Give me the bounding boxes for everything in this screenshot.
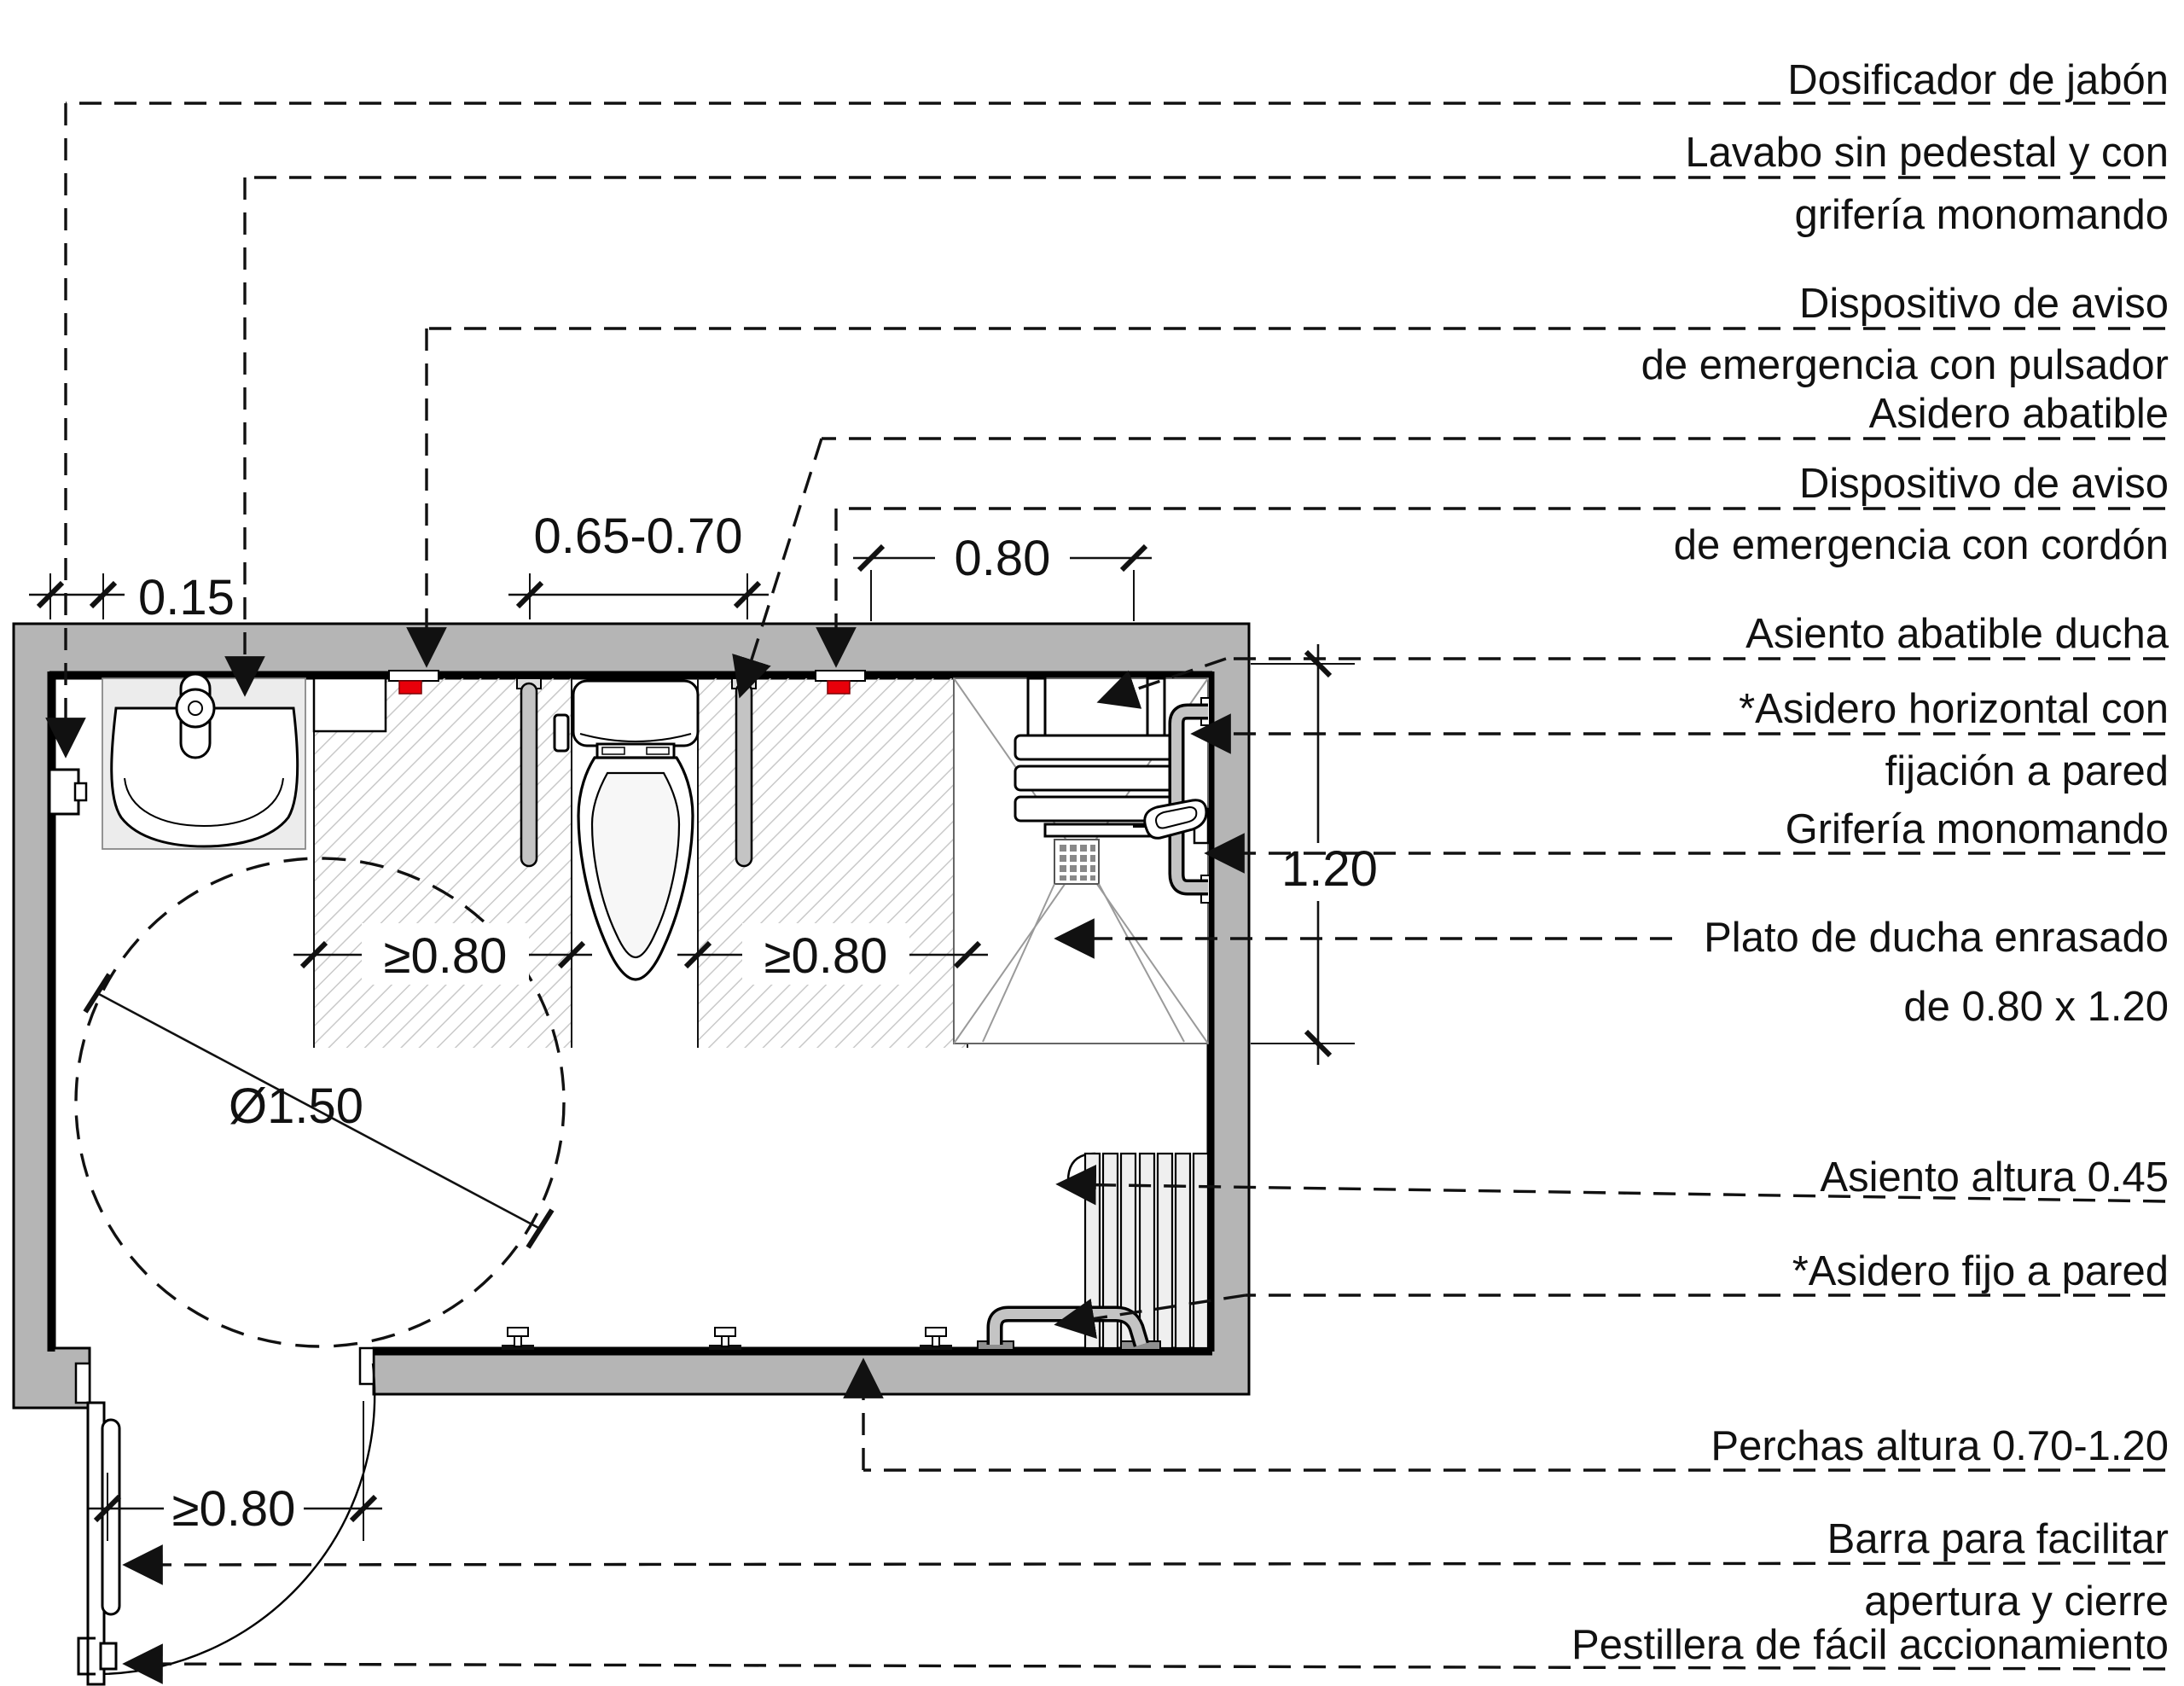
label-asidero-horizontal-2: fijación a pared	[1885, 748, 2169, 794]
label-plato-1: Plato de ducha enrasado	[1704, 915, 2169, 961]
dim-shower-width: 0.80	[955, 531, 1051, 586]
label-barra-2: apertura y cierre	[1864, 1578, 2169, 1625]
coat-hook-3	[920, 1328, 952, 1350]
washbasin	[102, 674, 305, 849]
label-asidero-fijo: *Asidero fijo a pared	[1792, 1248, 2169, 1294]
dim-soap-offset: 0.15	[138, 570, 235, 625]
label-griferia: Grifería monomando	[1786, 806, 2169, 852]
dim-shower-depth: 1.20	[1281, 841, 1378, 897]
cistern-shelf	[314, 678, 386, 731]
label-cordon-2: de emergencia con cordón	[1674, 522, 2169, 568]
dim-door-width: ≥0.80	[172, 1481, 296, 1537]
label-asidero-horizontal-1: *Asidero horizontal con	[1739, 686, 2169, 732]
dim-bar-spacing: 0.65-0.70	[533, 509, 742, 564]
toilet	[555, 681, 698, 980]
dim-bar-spacing-group: 0.65-0.70	[508, 509, 769, 619]
label-soap: Dosificador de jabón	[1787, 57, 2169, 103]
label-pestillera: Pestillera de fácil accionamiento	[1571, 1622, 2169, 1668]
door-jamb-left	[76, 1363, 90, 1403]
coat-hooks	[502, 1328, 952, 1350]
dim-transfer-left: ≥0.80	[384, 928, 508, 984]
label-lavabo-2: grifería monomando	[1794, 192, 2169, 238]
shower-area	[954, 678, 1210, 1044]
label-asiento-altura: Asiento altura 0.45	[1820, 1154, 2169, 1201]
dim-shower-width-group: 0.80	[853, 531, 1152, 621]
coat-hook-2	[709, 1328, 741, 1350]
label-barra-1: Barra para facilitar	[1827, 1516, 2169, 1562]
callout-labels: Dosificador de jabón Lavabo sin pedestal…	[1571, 57, 2169, 1668]
label-pulsador-2: de emergencia con pulsador	[1641, 342, 2169, 388]
dim-door-width-group: ≥0.80	[89, 1401, 382, 1541]
soap-dispenser	[49, 770, 86, 814]
dim-turning-circle: Ø1.50	[229, 1078, 363, 1134]
coat-hook-1	[502, 1328, 534, 1350]
door-pull-bar	[102, 1420, 119, 1614]
label-asidero-abatible: Asidero abatible	[1869, 391, 2169, 437]
door-jamb-right	[360, 1348, 374, 1384]
label-asiento-ducha: Asiento abatible ducha	[1745, 611, 2169, 657]
label-pulsador-1: Dispositivo de aviso	[1799, 281, 2169, 327]
label-cordon-1: Dispositivo de aviso	[1799, 461, 2169, 507]
grab-bar-fixed-floor	[978, 1314, 1160, 1350]
bathroom-floor-plan: Ø1.50 0.15 0.65-0.70 0.80 ≥0.80	[0, 0, 2184, 1686]
grab-bar-foldup-right	[732, 678, 756, 866]
grab-bar-foldup-left	[517, 678, 541, 866]
dim-soap-offset-group: 0.15	[29, 570, 235, 625]
washbasin-faucet-base	[177, 689, 214, 727]
label-lavabo-1: Lavabo sin pedestal y con	[1685, 130, 2169, 176]
leader-barra-arrow	[126, 1563, 2165, 1565]
dim-transfer-right: ≥0.80	[764, 928, 888, 984]
label-perchas: Perchas altura 0.70-1.20	[1711, 1423, 2169, 1469]
label-plato-2: de 0.80 x 1.20	[1903, 984, 2169, 1030]
